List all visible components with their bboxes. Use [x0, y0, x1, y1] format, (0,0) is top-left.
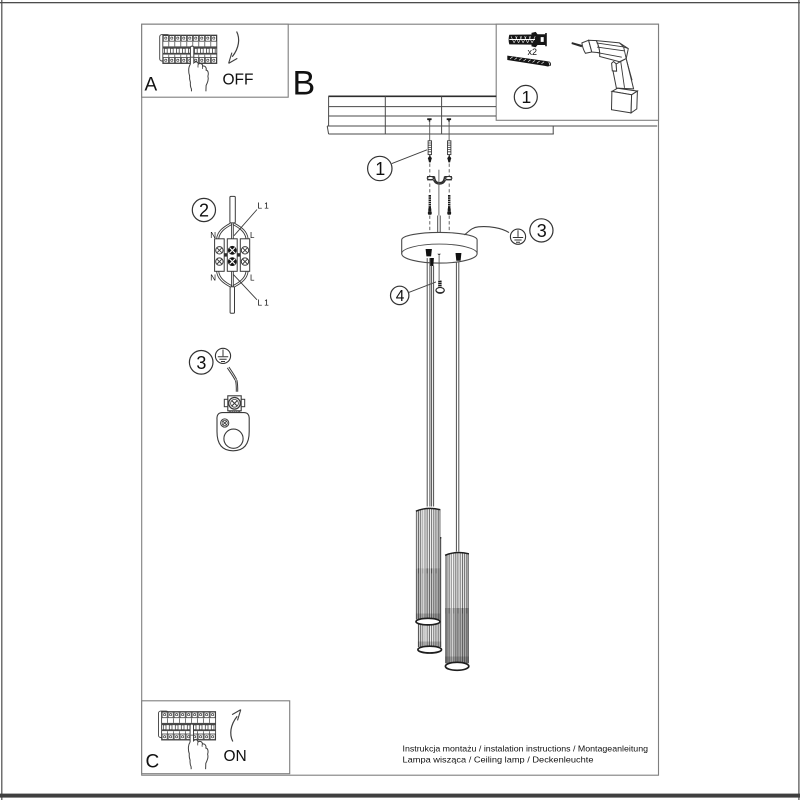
svg-text:4: 4 — [396, 288, 405, 305]
svg-text:L: L — [250, 273, 255, 282]
svg-text:x2: x2 — [528, 47, 538, 57]
svg-text:C: C — [146, 752, 160, 773]
svg-text:ON: ON — [224, 748, 247, 765]
svg-text:2: 2 — [199, 201, 209, 221]
svg-text:OFF: OFF — [223, 72, 254, 89]
svg-text:Lampa wisząca / Ceiling lamp /: Lampa wisząca / Ceiling lamp / Deckenleu… — [403, 755, 594, 765]
svg-text:N: N — [210, 231, 216, 240]
svg-text:L 1: L 1 — [257, 297, 269, 307]
svg-text:L 1: L 1 — [257, 201, 269, 211]
svg-text:N: N — [210, 273, 216, 282]
svg-text:3: 3 — [537, 221, 547, 241]
svg-text:L: L — [250, 231, 255, 240]
svg-text:B: B — [293, 65, 316, 103]
svg-text:A: A — [145, 75, 158, 96]
svg-text:Instrukcja montażu / instalati: Instrukcja montażu / instalation instruc… — [403, 743, 649, 753]
svg-text:1: 1 — [375, 159, 385, 179]
svg-text:3: 3 — [196, 353, 206, 373]
svg-text:1: 1 — [522, 87, 532, 107]
